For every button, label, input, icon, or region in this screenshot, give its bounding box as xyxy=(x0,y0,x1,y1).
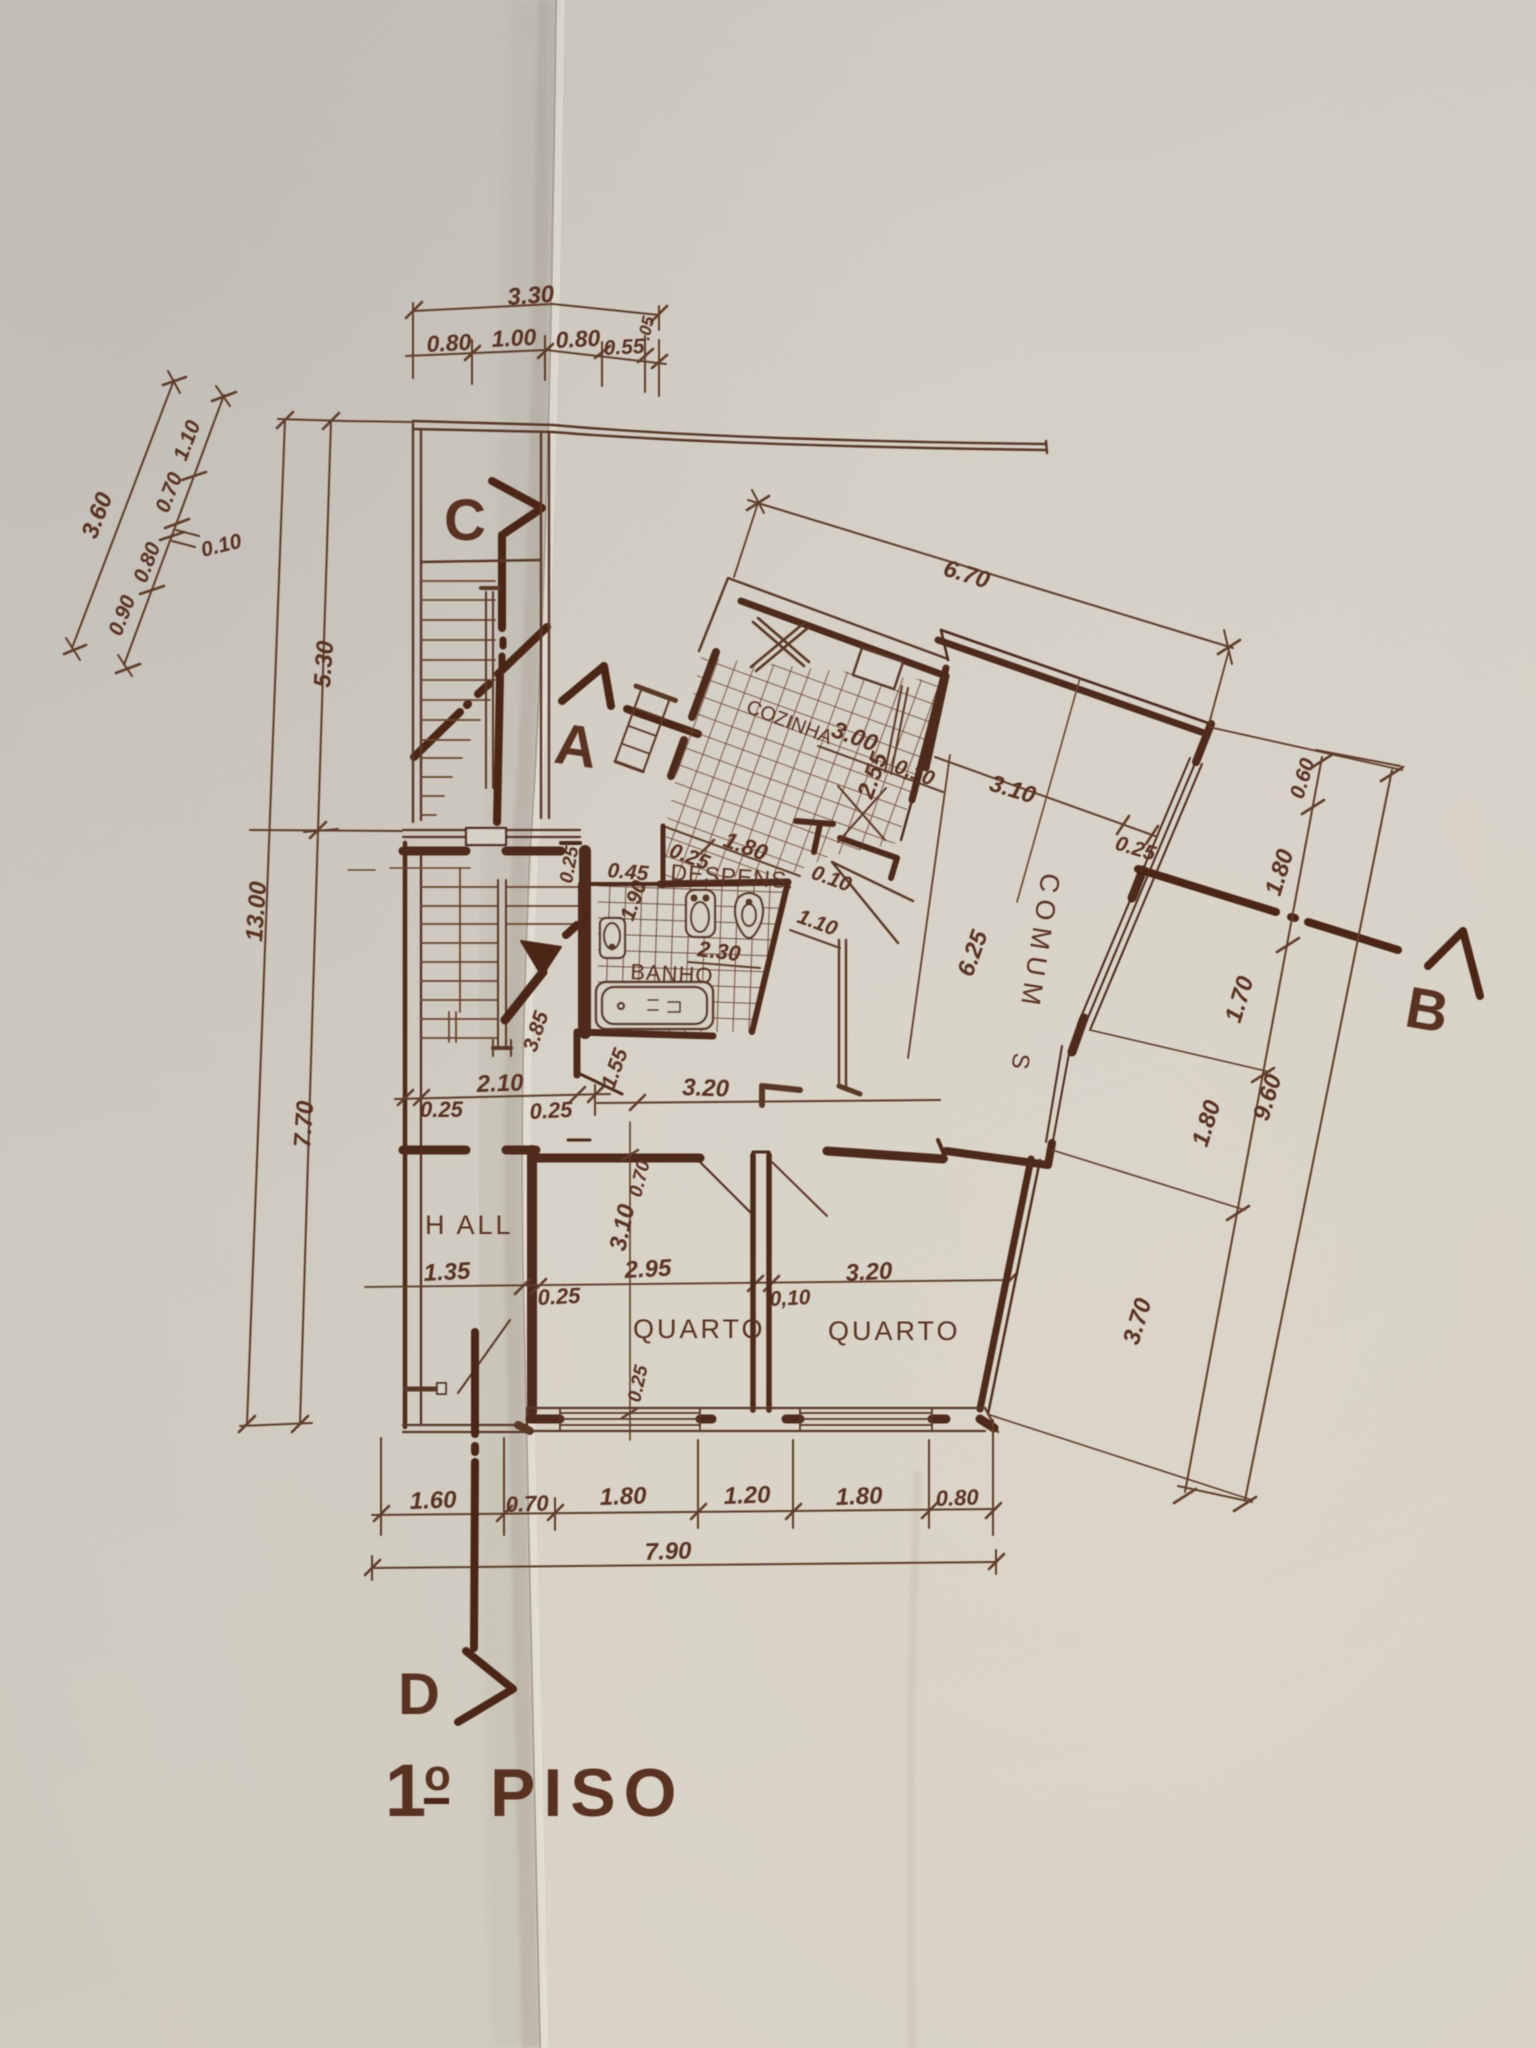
svg-text:0.80: 0.80 xyxy=(935,1484,979,1511)
svg-text:3.20: 3.20 xyxy=(682,1074,730,1103)
svg-text:QUARTO: QUARTO xyxy=(828,1316,961,1346)
svg-text:1.60: 1.60 xyxy=(409,1486,457,1515)
svg-text:1.00: 1.00 xyxy=(491,324,537,352)
svg-text:0.80: 0.80 xyxy=(555,325,601,353)
svg-text:A: A xyxy=(551,711,602,781)
svg-text:C: C xyxy=(444,488,486,553)
svg-text:13.00: 13.00 xyxy=(241,880,272,942)
svg-text:0.25: 0.25 xyxy=(529,1097,574,1124)
svg-text:7.90: 7.90 xyxy=(644,1537,692,1566)
svg-text:1.80: 1.80 xyxy=(599,1482,647,1511)
svg-text:1.35: 1.35 xyxy=(423,1258,472,1287)
svg-text:0.70: 0.70 xyxy=(505,1490,549,1517)
svg-text:0.25: 0.25 xyxy=(537,1283,582,1310)
svg-text:1.80: 1.80 xyxy=(835,1482,883,1511)
svg-text:2.10: 2.10 xyxy=(475,1069,524,1098)
svg-text:3.30: 3.30 xyxy=(507,281,556,311)
svg-text:1.20: 1.20 xyxy=(723,1481,771,1510)
svg-text:3.20: 3.20 xyxy=(845,1258,894,1287)
svg-text:QUARTO: QUARTO xyxy=(633,1314,766,1344)
svg-text:D: D xyxy=(398,1662,440,1727)
svg-text:o: o xyxy=(424,1751,451,1800)
svg-text:H ALL: H ALL xyxy=(425,1210,514,1240)
svg-text:1: 1 xyxy=(385,1749,426,1832)
svg-text:0.25: 0.25 xyxy=(420,1097,464,1122)
svg-text:0,10: 0,10 xyxy=(769,1286,811,1311)
svg-text:7.70: 7.70 xyxy=(289,1099,319,1148)
svg-text:PISO: PISO xyxy=(490,1755,685,1831)
svg-text:0.80: 0.80 xyxy=(426,329,472,357)
svg-text:5.30: 5.30 xyxy=(309,639,339,688)
